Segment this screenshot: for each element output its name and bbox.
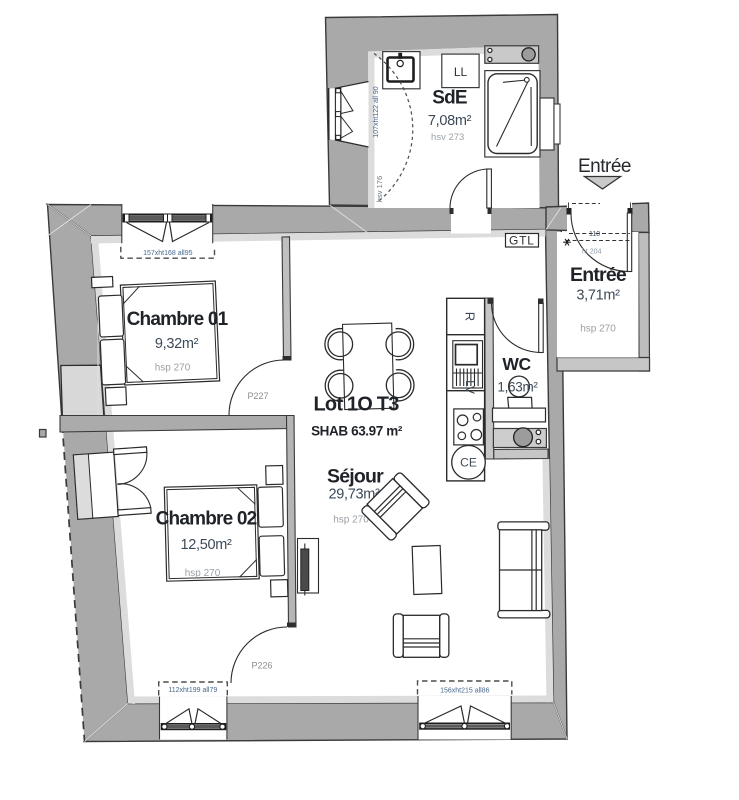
- svg-text:hsp 270: hsp 270: [155, 363, 191, 374]
- svg-text:9,32m²: 9,32m²: [155, 336, 199, 352]
- svg-text:LL: LL: [454, 65, 468, 79]
- svg-text:SHAB 63.97 m²: SHAB 63.97 m²: [311, 423, 403, 438]
- svg-text:hsp 270: hsp 270: [333, 515, 369, 526]
- svg-text:Entrée: Entrée: [570, 264, 627, 286]
- svg-text:12,50m²: 12,50m²: [180, 537, 232, 553]
- svg-text:hsp 270: hsp 270: [580, 324, 616, 335]
- svg-text:156xht215 all86: 156xht215 all86: [440, 688, 490, 695]
- svg-text:Lot 1O T3: Lot 1O T3: [313, 394, 399, 416]
- svg-text:112xht199 all79: 112xht199 all79: [168, 687, 217, 694]
- svg-text:SdE: SdE: [432, 88, 467, 109]
- svg-text:R: R: [463, 312, 478, 321]
- svg-text:hsv 273: hsv 273: [431, 132, 464, 143]
- svg-text:157xht168 all95: 157xht168 all95: [143, 250, 193, 257]
- svg-text:1,63m²: 1,63m²: [497, 380, 538, 395]
- svg-text:3,71m²: 3,71m²: [576, 288, 620, 304]
- svg-text:ht 204: ht 204: [582, 249, 602, 256]
- svg-text:P226: P226: [251, 661, 272, 671]
- svg-text:LV: LV: [463, 380, 477, 394]
- svg-text:CE: CE: [460, 456, 477, 470]
- svg-text:Entrée: Entrée: [578, 156, 631, 177]
- svg-text:hsv 176: hsv 176: [375, 176, 384, 202]
- svg-text:107xht122 all 90: 107xht122 all 90: [373, 86, 380, 137]
- svg-text:7,08m²: 7,08m²: [428, 113, 472, 129]
- svg-text:Chambre 01: Chambre 01: [127, 309, 229, 330]
- svg-text:GTL: GTL: [509, 233, 535, 247]
- svg-text:Chambre 02: Chambre 02: [156, 509, 257, 530]
- svg-text:P227: P227: [247, 391, 268, 401]
- svg-text:hsp 270: hsp 270: [185, 568, 221, 579]
- svg-text:WC: WC: [502, 354, 531, 374]
- svg-text:Séjour: Séjour: [327, 466, 384, 488]
- svg-text:110: 110: [589, 231, 600, 238]
